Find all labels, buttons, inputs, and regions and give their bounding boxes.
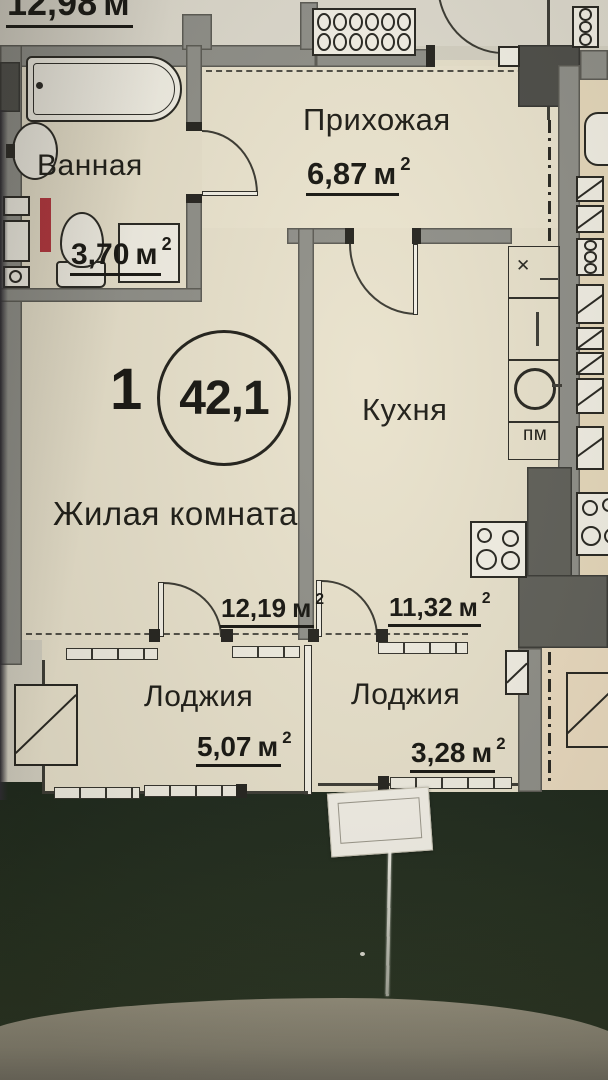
shaft-circles-top-icon — [572, 6, 599, 48]
glazing-jamb — [378, 776, 389, 790]
counter-box-2 — [508, 298, 560, 360]
loggia-left-glazing-frame-1 — [54, 787, 140, 799]
room-label-bathroom: Ванная — [37, 149, 143, 183]
photo-edge-shadow — [0, 110, 8, 800]
wall-left-dark-block — [0, 62, 20, 112]
wall-living-kitchen-divider — [298, 228, 314, 640]
door-jamb — [345, 228, 354, 244]
section-dashdot-lower — [548, 652, 551, 784]
total-area-circle: 42,1 — [157, 330, 291, 466]
cropped-area-value: 12,98 — [7, 0, 97, 23]
loggia-left-glazing-frame-2 — [144, 785, 238, 797]
section-dashdot-upper — [548, 120, 551, 242]
area-label-loggia-left: 5,07м2 — [196, 731, 291, 767]
total-area-number: 42,1 — [179, 371, 268, 426]
room-label-living: Жилая комната — [53, 495, 298, 533]
swing-panel-icon — [576, 176, 604, 202]
door-jamb — [186, 194, 202, 203]
glazing-symbol-neighbor — [566, 672, 608, 748]
room-hallway — [202, 66, 558, 228]
room-label-hallway: Прихожая — [303, 102, 451, 138]
swing-panel-icon — [576, 378, 604, 414]
wall-band-right — [580, 50, 608, 80]
area-label-hallway: 6,87м2 — [306, 156, 410, 196]
area-label-loggia-right: 3,28м2 — [410, 737, 505, 773]
wall-hallway-south-1 — [287, 228, 353, 244]
glazing-symbol-left — [14, 684, 78, 766]
window-sill-kitchen — [378, 642, 468, 654]
stove-icon — [470, 521, 527, 578]
area-label-bathroom: 3,70м2 — [70, 237, 171, 276]
wall-bathroom-right-upper — [186, 45, 202, 130]
white-sticker — [327, 787, 433, 858]
wall-bathroom-bottom — [0, 288, 202, 302]
bathtub-tap-icon — [36, 82, 43, 89]
neighbor-stove-icon — [576, 492, 608, 556]
loggia-divider — [304, 645, 312, 795]
kitchen-door-leaf — [413, 244, 418, 315]
bathtub-inner-line — [33, 63, 175, 115]
floor-plan-photo: ✕ пм 12,98м2 — [0, 0, 608, 1080]
window-sill-left — [66, 648, 158, 660]
kitchen-sink-tap — [552, 384, 562, 387]
door-jamb — [376, 629, 388, 642]
area-label-kitchen: 11,32м2 — [388, 592, 490, 627]
shaft-circles-icon — [576, 238, 604, 276]
dishwasher-label: пм — [523, 424, 547, 446]
shaft-dark — [527, 467, 572, 585]
drain-icon — [9, 270, 22, 283]
white-speck — [360, 952, 365, 956]
room-label-loggia-left: Лоджия — [144, 680, 253, 714]
door-jamb — [308, 629, 319, 642]
table-edge — [0, 998, 608, 1080]
door-jamb — [426, 45, 435, 67]
cropped-area-label-clip: 12,98м2 — [4, 0, 260, 30]
wall-kitchen-bottom-right — [518, 575, 608, 648]
glazing-jamb — [236, 784, 247, 798]
window-sill-mid — [232, 646, 300, 658]
bathroom-door-leaf — [202, 191, 258, 196]
rooms-count-number: 1 — [110, 356, 142, 423]
door-jamb — [149, 629, 160, 642]
wall-hallway-south-2 — [419, 228, 512, 244]
entrance-jamb-box — [498, 46, 520, 67]
area-label-living: 12,19м2 — [220, 593, 323, 628]
swing-panel-icon — [576, 205, 604, 233]
room-label-loggia-right: Лоджия — [351, 678, 460, 712]
cropped-area-label: 12,98м2 — [6, 0, 145, 28]
neighbor-sink-icon — [584, 112, 608, 166]
counter-x-icon: ✕ — [516, 258, 532, 274]
wall-bathroom-right-lower — [186, 196, 202, 302]
counter-mark-2 — [536, 312, 539, 346]
swing-panel-icon — [576, 426, 604, 470]
radiator-icon — [312, 8, 416, 56]
counter-mark — [540, 278, 558, 280]
door-jamb — [412, 228, 421, 244]
swing-panel-icon — [576, 327, 604, 350]
kitchen-sink-icon — [514, 368, 556, 410]
hallway-dashed-line — [206, 70, 544, 72]
swing-panel-icon — [576, 352, 604, 375]
room-label-kitchen: Кухня — [362, 392, 447, 428]
riser-red-icon — [40, 198, 51, 252]
door-jamb — [186, 122, 202, 131]
cropped-area-unit: м — [103, 0, 130, 23]
glazing-symbol-small — [505, 650, 529, 695]
door-jamb — [221, 629, 233, 642]
swing-panel-icon — [576, 284, 604, 324]
